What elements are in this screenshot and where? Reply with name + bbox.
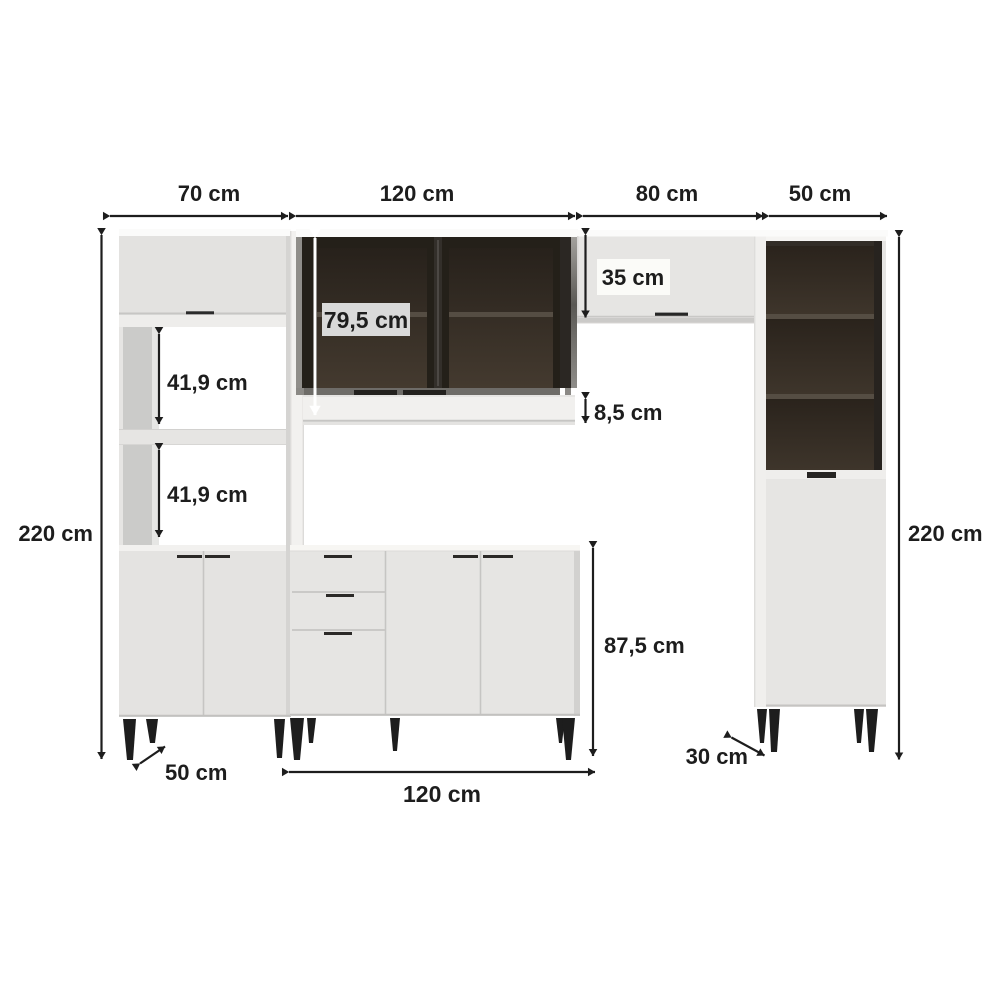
svg-text:120 cm: 120 cm <box>380 181 455 206</box>
svg-text:220 cm: 220 cm <box>908 521 983 546</box>
svg-text:70 cm: 70 cm <box>178 181 240 206</box>
svg-text:30 cm: 30 cm <box>686 744 748 769</box>
svg-text:220 cm: 220 cm <box>18 521 93 546</box>
svg-text:80 cm: 80 cm <box>636 181 698 206</box>
svg-text:120 cm: 120 cm <box>403 781 481 807</box>
svg-text:41,9 cm: 41,9 cm <box>167 482 248 507</box>
svg-text:79,5 cm: 79,5 cm <box>324 307 408 333</box>
svg-text:35 cm: 35 cm <box>602 265 664 290</box>
svg-text:50 cm: 50 cm <box>789 181 851 206</box>
svg-text:50 cm: 50 cm <box>165 760 227 785</box>
svg-text:41,9 cm: 41,9 cm <box>167 370 248 395</box>
svg-text:8,5 cm: 8,5 cm <box>594 400 663 425</box>
svg-text:87,5 cm: 87,5 cm <box>604 633 685 658</box>
